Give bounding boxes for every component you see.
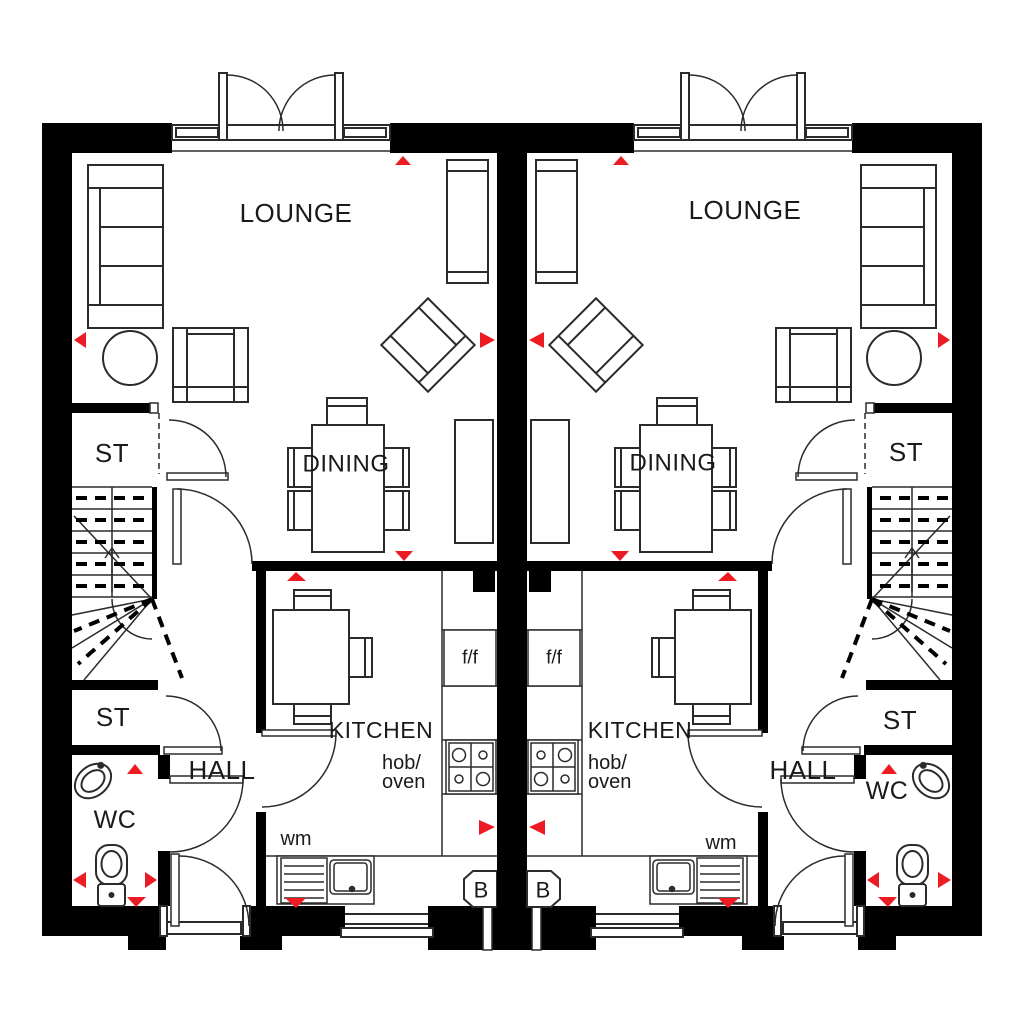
room-label-wc: WC: [94, 806, 137, 834]
room-label-lounge: LOUNGE: [240, 198, 353, 228]
room-label-store-upper: ST: [889, 437, 923, 467]
room-label-hall: HALL: [769, 755, 836, 785]
room-label-kitchen: KITCHEN: [329, 717, 433, 743]
room-label-store-upper: ST: [95, 438, 129, 468]
floorplan-svg: LOUNGE DINING ST ST HALL WC KITCHEN hob/…: [0, 0, 1024, 1024]
floorplan-canvas: LOUNGE DINING ST ST HALL WC KITCHEN hob/…: [0, 0, 1024, 1024]
room-label-store-lower: ST: [96, 702, 130, 732]
room-label-store-lower: ST: [883, 705, 917, 735]
label-boiler: B: [474, 878, 489, 903]
label-washing-machine: wm: [279, 828, 311, 850]
label-fridge-freezer: f/f: [546, 648, 563, 669]
label-hob-oven-line2: oven: [588, 771, 631, 793]
label-fridge-freezer: f/f: [462, 648, 479, 669]
label-washing-machine: wm: [704, 832, 736, 854]
room-label-kitchen: KITCHEN: [588, 717, 692, 743]
room-label-wc: WC: [866, 777, 909, 805]
label-hob-oven-line2: oven: [382, 771, 425, 793]
room-label-dining: DINING: [630, 450, 717, 477]
room-label-lounge: LOUNGE: [689, 195, 802, 225]
room-label-hall: HALL: [188, 755, 255, 785]
label-boiler: B: [536, 878, 551, 903]
room-label-dining: DINING: [303, 451, 390, 478]
